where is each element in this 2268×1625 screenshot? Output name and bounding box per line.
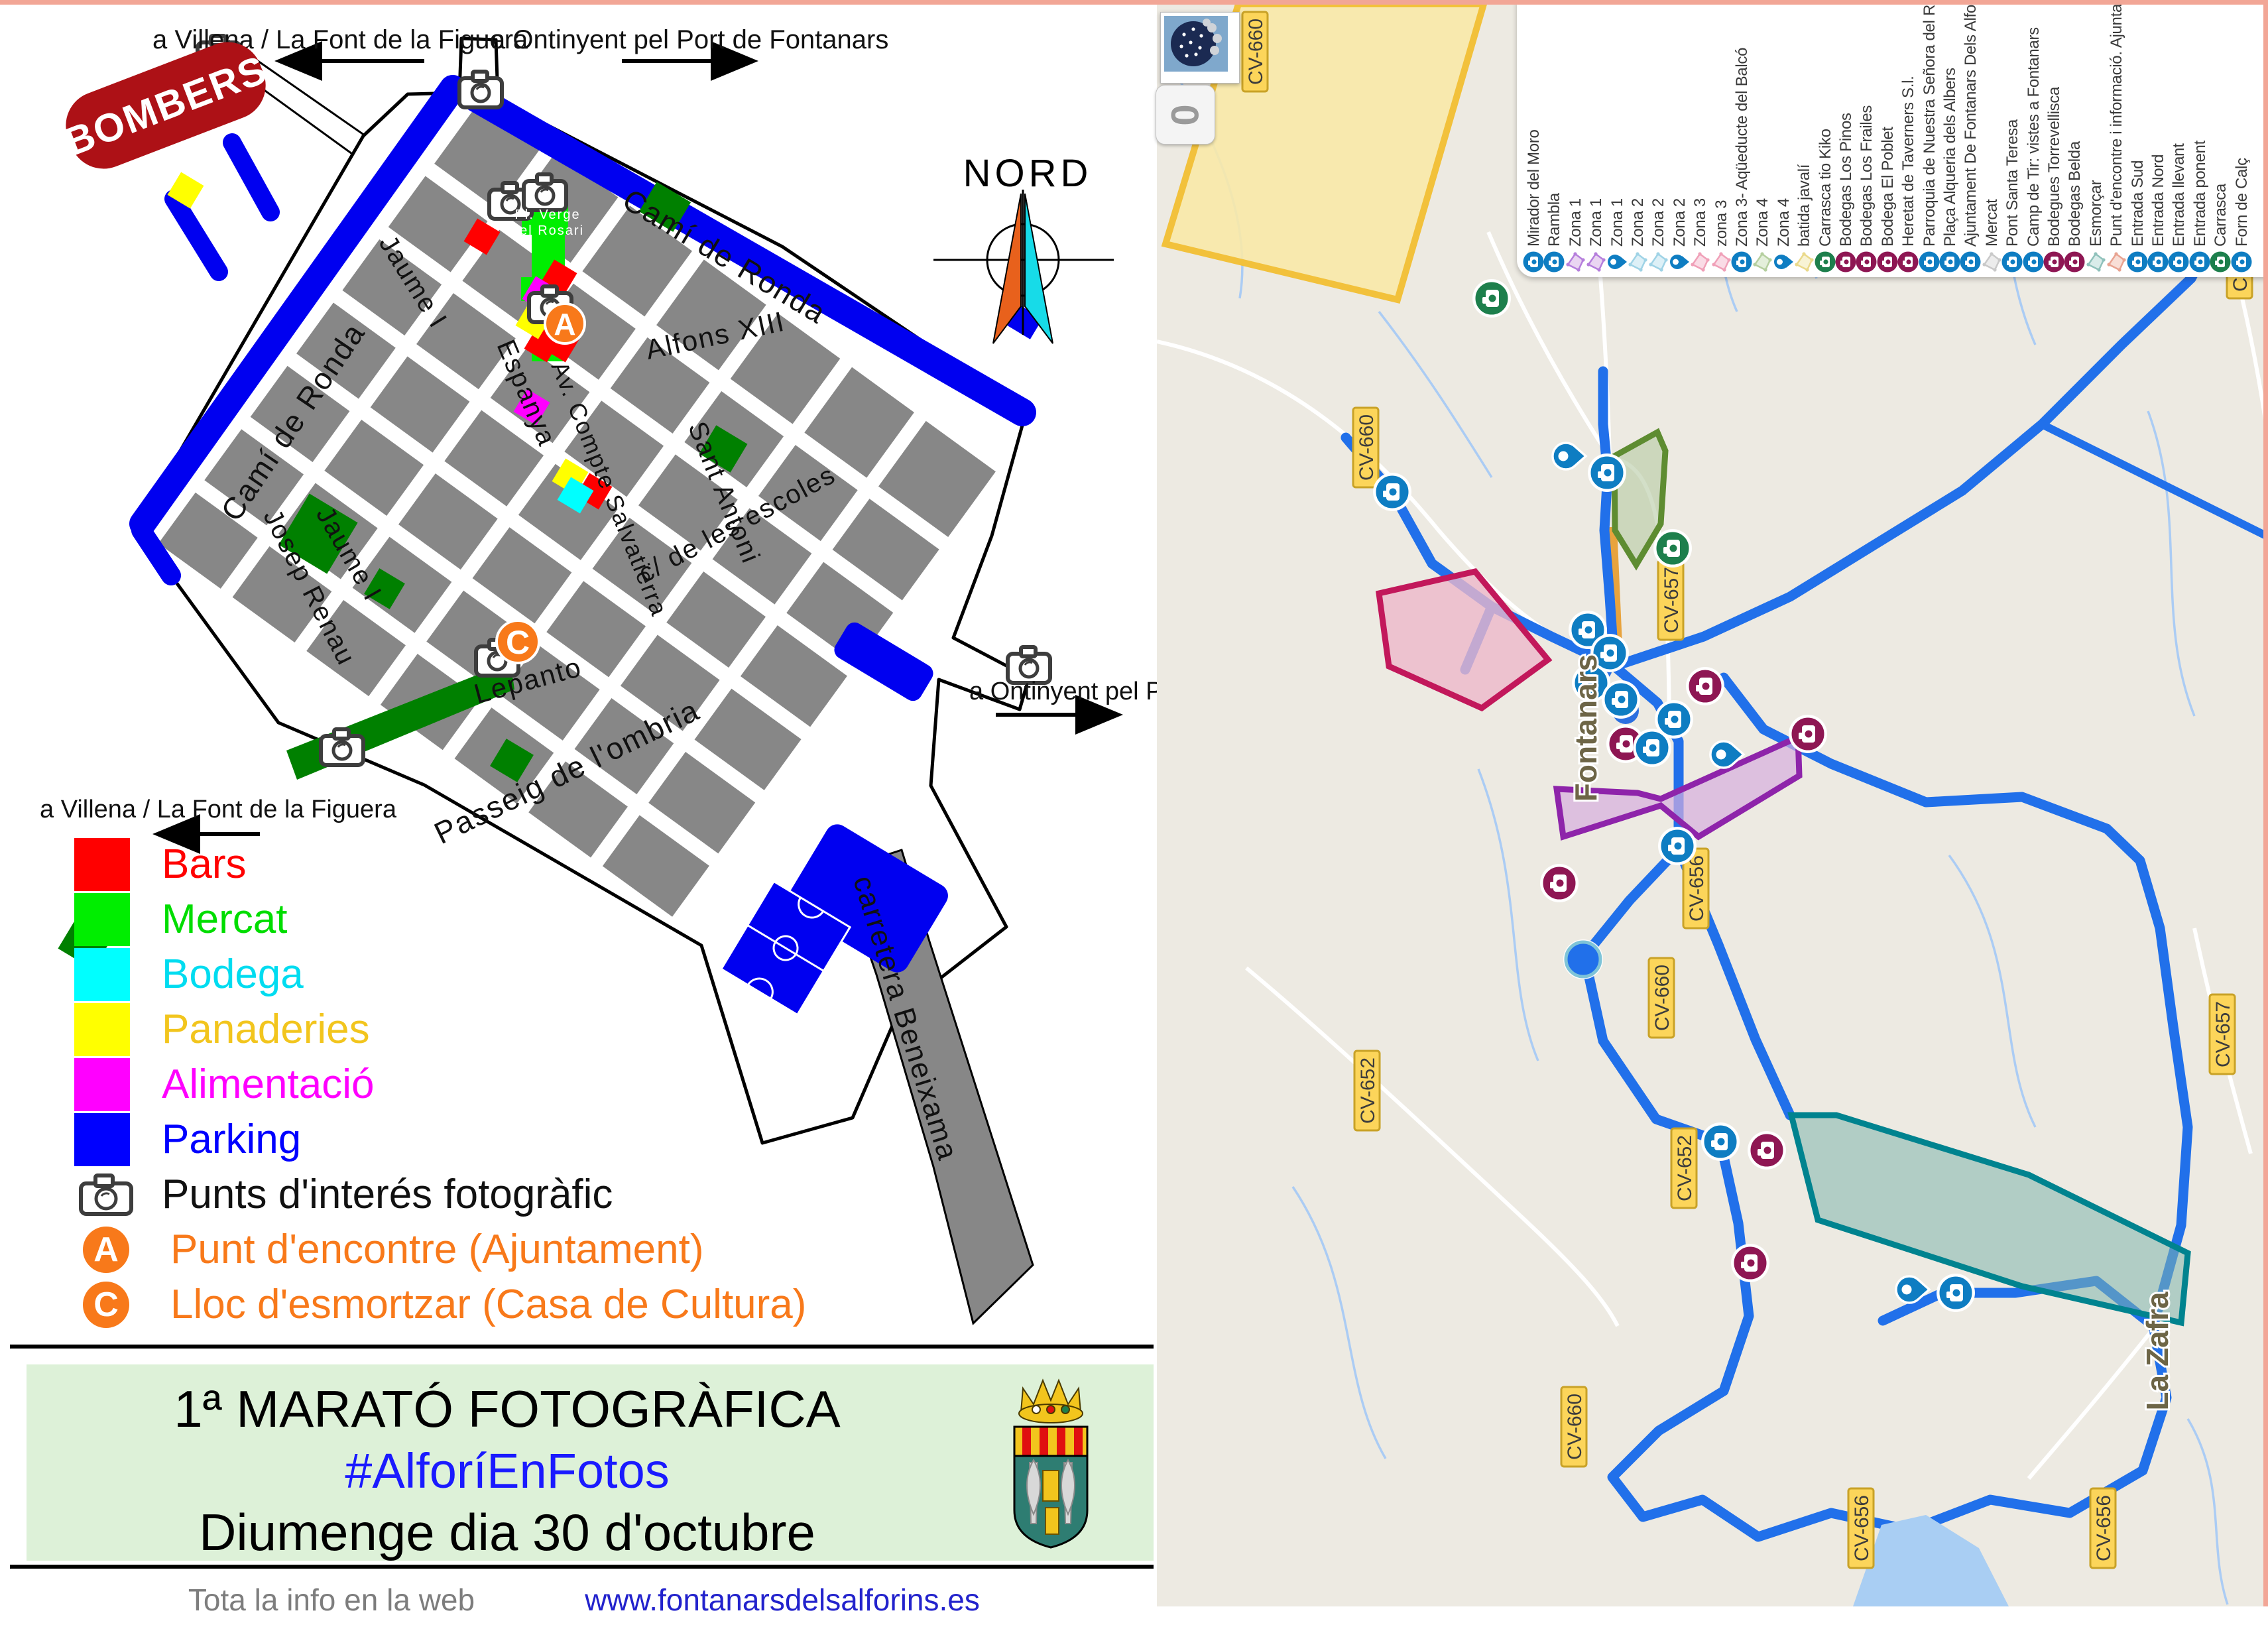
legend-swatch: [74, 893, 130, 946]
legend-poly-icon[interactable]: [1626, 251, 1649, 273]
legend-cam-icon[interactable]: [1918, 251, 1940, 273]
legend-item-label[interactable]: Heretat de Taverners S.l.: [1899, 76, 1918, 247]
legend-cam-icon[interactable]: [1897, 251, 1919, 273]
legend-label: Punt d'encontre (Ajuntament): [170, 1226, 704, 1273]
legend-swatch: [74, 1113, 130, 1166]
legend-item-label[interactable]: Carrasca: [2212, 184, 2230, 247]
legend-row: CLloc d'esmortzar (Casa de Cultura): [74, 1277, 806, 1332]
legend-cam-icon[interactable]: [1814, 251, 1836, 273]
legend-poly-icon[interactable]: [2105, 251, 2127, 273]
compass-rose: [933, 190, 1114, 343]
road-badge: CV-660: [1561, 1387, 1586, 1467]
legend-row: Alimentació: [74, 1057, 806, 1112]
legend-item-label[interactable]: Rambla: [1545, 193, 1564, 247]
event-title: 1ª MARATÓ FOTOGRÀFICA: [27, 1379, 988, 1439]
footer-text: Tota la info en la web: [119, 1582, 544, 1618]
legend-item-label[interactable]: Pont Santa Teresa: [2003, 119, 2022, 247]
legend-pin-icon[interactable]: [1772, 251, 1795, 273]
legend-row: Parking: [74, 1112, 806, 1167]
svg-text:CV-652: CV-652: [1357, 1057, 1379, 1124]
svg-text:CV-660: CV-660: [1356, 414, 1378, 481]
legend-label: Bars: [162, 841, 246, 888]
divider-bottom: [10, 1565, 1154, 1569]
road-badge: CV-656: [2090, 1488, 2116, 1568]
road-badge: CV-657: [2210, 994, 2235, 1074]
legend-poly-icon[interactable]: [1647, 251, 1669, 273]
svg-text:CV-660: CV-660: [1651, 965, 1673, 1031]
event-date: Diumenge dia 30 d'octubre: [27, 1502, 988, 1563]
camera-marker-blue[interactable]: [1633, 729, 1671, 767]
flyer-and-map: A C Camí de RondaCamí de RondaJaume IJau…: [0, 0, 2268, 1625]
legend-cam-icon[interactable]: [1543, 251, 1565, 273]
camera-marker-blue[interactable]: [1373, 473, 1411, 511]
road-badge: CV-656: [1848, 1488, 1874, 1568]
legend-item-label[interactable]: Zona 4: [1754, 198, 1772, 247]
legend-item-label[interactable]: Bodegas Los Frailes: [1858, 105, 1876, 247]
legend-badge-a: A: [83, 1227, 129, 1273]
road-badge: CV-652: [1671, 1128, 1697, 1208]
event-hashtag: #AlforíEnFotos: [27, 1443, 988, 1499]
legend-item-label[interactable]: Zona 1: [1587, 198, 1606, 247]
legend-cam-icon[interactable]: [2167, 251, 2190, 273]
street-label: Pl. Verge: [514, 208, 580, 222]
camera-marker-maroon[interactable]: [1731, 1244, 1769, 1282]
legend-item-label[interactable]: Bodegas Los Pinos: [1837, 113, 1856, 247]
svg-text:CV-660: CV-660: [1245, 19, 1267, 85]
legend-item-label[interactable]: Entrada ponent: [2191, 141, 2210, 247]
legend-cam-icon[interactable]: [2063, 251, 2086, 273]
svg-text:CV-657: CV-657: [1661, 567, 1683, 633]
legend-cam-icon[interactable]: [2188, 251, 2211, 273]
legend-item-label[interactable]: Zona 3- Aqüeducte del Balcó: [1733, 48, 1752, 247]
camera-icon: [524, 174, 566, 210]
legend-cam-icon[interactable]: [1522, 251, 1545, 273]
town-crest: [985, 1371, 1117, 1555]
label-ontinyent-port: a Ontinyent pel Port de Fontanars: [491, 25, 809, 55]
zoom-button[interactable]: 0: [1156, 85, 1215, 145]
camera-marker-blue[interactable]: [1602, 680, 1640, 719]
legend-badge-c: C: [83, 1282, 129, 1328]
legend-pin-icon[interactable]: [1668, 251, 1691, 273]
marker-a-ajuntament: A: [545, 304, 585, 343]
legend-item-label[interactable]: batida javalí: [1795, 164, 1814, 247]
camera-marker-maroon[interactable]: [1789, 715, 1827, 753]
svg-text:CV-652: CV-652: [1674, 1135, 1696, 1201]
legend-cam-icon[interactable]: [1855, 251, 1878, 273]
legend-item-label[interactable]: Bodega El Poblet: [1879, 127, 1897, 247]
legend-item-label[interactable]: Bodegas Belda: [2066, 141, 2084, 247]
svg-text:CV-657: CV-657: [2212, 1001, 2234, 1067]
legend-cam-icon[interactable]: [2230, 251, 2253, 273]
zoom-button-label: 0: [1163, 104, 1207, 125]
label-pou-clar: a Ontinyent pel Pou Clar: [969, 678, 1168, 706]
legend-item-label[interactable]: Forn de Calç: [2233, 158, 2251, 247]
camera-marker-blue[interactable]: [1937, 1274, 1975, 1312]
legend-cam-icon[interactable]: [1876, 251, 1899, 273]
north-label: NORD: [961, 151, 1094, 196]
road-badge: CV-660: [1242, 12, 1268, 91]
camera-marker-green[interactable]: [1653, 529, 1692, 568]
legend-item-label[interactable]: Punt d'encontre i informació. Ajuntam...: [2108, 0, 2126, 247]
camera-marker-maroon[interactable]: [1686, 667, 1724, 705]
legend-item-label[interactable]: Entrada llevant: [2170, 143, 2188, 247]
legend-label: Punts d'interés fotogràfic: [162, 1171, 613, 1218]
camera-marker-maroon[interactable]: [1540, 864, 1579, 902]
legend-poly-icon[interactable]: [2084, 251, 2107, 273]
legend-item-label[interactable]: Carrasca tio Kiko: [1817, 129, 1835, 247]
legend-item-label[interactable]: Zona 1: [1608, 198, 1627, 247]
legend-cam-icon[interactable]: [1730, 251, 1753, 273]
legend-poly-icon[interactable]: [1564, 251, 1586, 273]
legend-item-label[interactable]: Zona 3: [1691, 198, 1710, 247]
legend-cam-icon[interactable]: [2126, 251, 2149, 273]
place-label: Fontanars: [1569, 654, 1603, 802]
legend-item-label[interactable]: Zona 2: [1671, 198, 1689, 247]
legend-label: Mercat: [162, 896, 287, 943]
legend-cam-icon[interactable]: [1939, 251, 1961, 273]
legend-swatch: [74, 948, 130, 1001]
svg-text:CV-660: CV-660: [1564, 1394, 1586, 1460]
legend-swatch: [74, 1003, 130, 1056]
legend-cam-icon[interactable]: [2043, 251, 2065, 273]
selected-point-marker[interactable]: [1563, 939, 1603, 979]
street-label: del Rosari: [511, 223, 584, 238]
legend-item-label[interactable]: Bodegues Torrevellisca: [2045, 87, 2064, 247]
legend-label: Parking: [162, 1116, 301, 1163]
legend-item-label[interactable]: Ajuntament De Fontanars Dels Alforins: [1962, 0, 1980, 247]
legend-item-label[interactable]: Mirador del Moro: [1525, 129, 1543, 247]
page-edge-top: [0, 0, 2268, 5]
map-legend-card: Mirador del MoroRamblaZona 1Zona 1Zona 1…: [1517, 0, 2268, 277]
legend-cam-icon[interactable]: [2147, 251, 2169, 273]
legend-poly-icon[interactable]: [1793, 251, 1815, 273]
divider-top: [10, 1345, 1154, 1349]
legend-label: Bodega: [162, 951, 304, 998]
label-villena-sw: a Villena / La Font de la Figuera: [40, 796, 292, 824]
marker-c-casa-cultura: C: [497, 621, 539, 663]
legend-cam-icon[interactable]: [1834, 251, 1857, 273]
legend-poly-icon[interactable]: [1980, 251, 2003, 273]
legend-item-label[interactable]: Zona 4: [1775, 198, 1793, 247]
legend-row: Bodega: [74, 947, 806, 1002]
footer-link[interactable]: www.fontanarsdelsalforins.es: [570, 1582, 994, 1618]
legend-cam-icon[interactable]: [1959, 251, 1982, 273]
legend-row: Punts d'interés fotogràfic: [74, 1167, 806, 1222]
legend-label: Lloc d'esmortzar (Casa de Cultura): [170, 1281, 806, 1328]
legend-swatch: [74, 1058, 130, 1111]
svg-text:CV-656: CV-656: [2093, 1495, 2115, 1561]
road-badge: CV-657: [1658, 560, 1683, 640]
event-banner: 1ª MARATÓ FOTOGRÀFICA #AlforíEnFotos Diu…: [27, 1364, 1154, 1561]
svg-text:CV-656: CV-656: [1686, 855, 1708, 922]
camera-icon: [459, 72, 502, 107]
page-edge-right: [2263, 0, 2268, 1606]
legend-pin-icon[interactable]: [1606, 251, 1628, 273]
road-badge: CV-660: [1649, 958, 1674, 1038]
legend-poly-icon[interactable]: [1710, 251, 1732, 273]
legend-poly-icon[interactable]: [1751, 251, 1773, 273]
legend-item-label[interactable]: Camp de Tir: vistes a Fontanars: [2025, 27, 2043, 247]
camera-marker-green[interactable]: [1472, 279, 1511, 318]
legend-row: Bars: [74, 837, 806, 892]
svg-text:CV-656: CV-656: [1851, 1495, 1873, 1561]
legend-poly-icon[interactable]: [1689, 251, 1711, 273]
legend-item-label[interactable]: Esmorçar: [2087, 180, 2106, 247]
legend-item-label[interactable]: Entrada Nord: [2149, 154, 2168, 247]
place-label: La Zafra: [2140, 1292, 2175, 1410]
legend-cam-icon[interactable]: [2022, 251, 2045, 273]
camera-marker-blue[interactable]: [1658, 827, 1697, 865]
legend-label: Panaderies: [162, 1006, 370, 1053]
legend-item-label[interactable]: Mercat: [1983, 199, 2001, 247]
svg-text:C: C: [506, 624, 530, 661]
svg-text:A: A: [554, 307, 575, 341]
routes-map-panel: CV-660CV-660CV-657CV-657CV-657CV-656CV-6…: [1157, 0, 2268, 1625]
camera-marker-blue[interactable]: [1588, 453, 1626, 492]
legend-item-label[interactable]: Zona 2: [1649, 198, 1668, 247]
legend-item-label[interactable]: Plaça Alqueria dels Albers: [1941, 68, 1960, 247]
camera-icon: [321, 729, 363, 765]
road-badge: CV-652: [1354, 1051, 1380, 1130]
flyer-legend: BarsMercatBodegaPanaderiesAlimentacióPar…: [74, 837, 806, 1332]
legend-label: Alimentació: [162, 1061, 374, 1108]
legend-item-label[interactable]: Entrada Sud: [2129, 160, 2147, 247]
legend-item-label[interactable]: Parroquia de Nuestra Señora del Rosa...: [1921, 0, 1939, 247]
legend-cam-icon[interactable]: [2209, 251, 2232, 273]
legend-item-label[interactable]: Zona 2: [1629, 198, 1647, 247]
legend-cam-icon[interactable]: [2001, 251, 2023, 273]
legend-item-label[interactable]: zona 3: [1712, 200, 1731, 247]
legend-item-label[interactable]: Zona 1: [1567, 198, 1585, 247]
legend-row: Mercat: [74, 892, 806, 947]
road-badge: CV-660: [1353, 408, 1378, 487]
camera-marker-blue[interactable]: [1701, 1122, 1740, 1161]
camera-icon: [74, 1168, 138, 1221]
legend-poly-icon[interactable]: [1584, 251, 1607, 273]
camera-marker-maroon[interactable]: [1748, 1131, 1786, 1170]
photo-thumbnail[interactable]: [1160, 12, 1240, 84]
legend-row: APunt d'encontre (Ajuntament): [74, 1222, 806, 1277]
legend-row: Panaderies: [74, 1002, 806, 1057]
legend-swatch: [74, 838, 130, 891]
